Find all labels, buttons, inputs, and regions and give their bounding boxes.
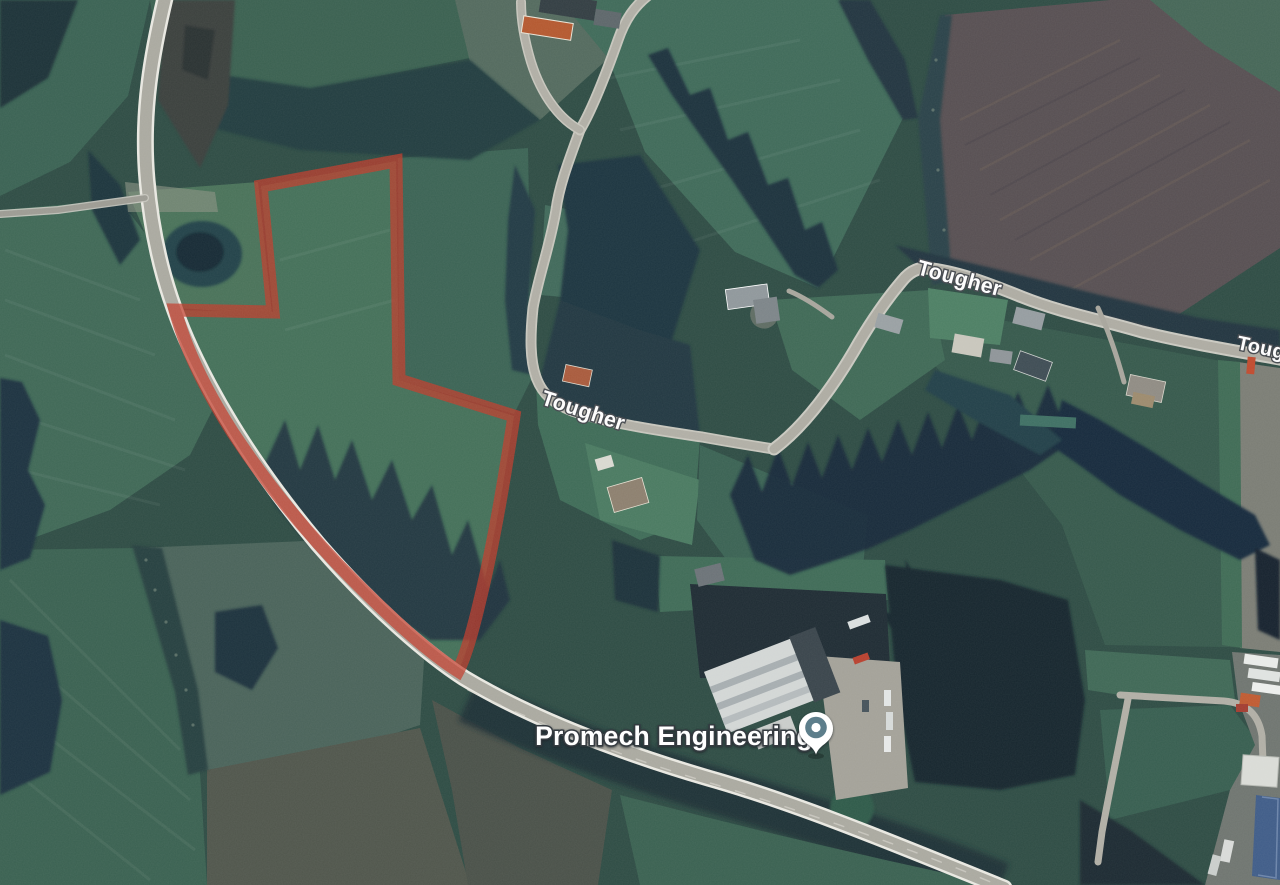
place-label-promech-engineering[interactable]: Promech Engineering (535, 721, 813, 751)
satellite-map-viewport[interactable]: Tougher Tougher Tougher Promech Engineer… (0, 0, 1280, 885)
satellite-map[interactable]: Tougher Tougher Tougher Promech Engineer… (0, 0, 1280, 885)
